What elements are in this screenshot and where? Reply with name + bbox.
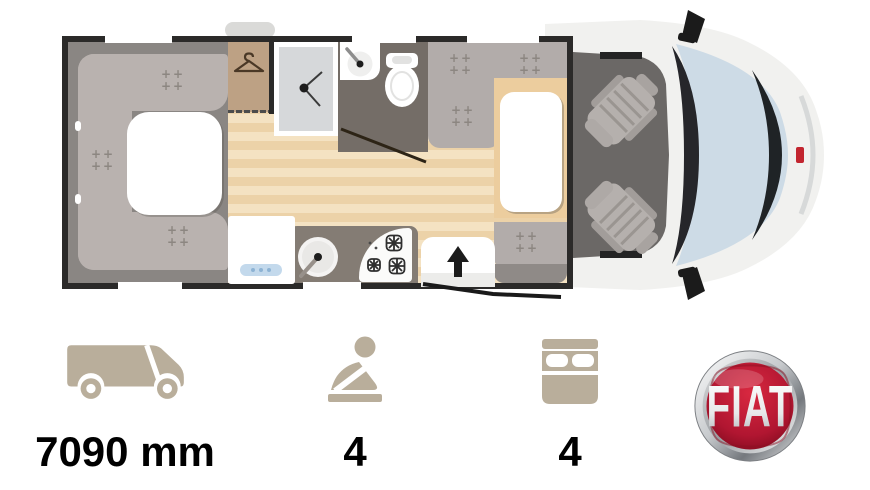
- washroom-door-swing: [338, 126, 430, 168]
- lounge-table: [127, 112, 222, 215]
- travel-seats-value: 4: [299, 428, 411, 476]
- spec-berths: 4: [514, 338, 626, 476]
- window: [303, 282, 361, 289]
- seated-person-icon: [323, 336, 387, 404]
- step-control-dots: [240, 264, 282, 276]
- upholstery-buttons: [450, 104, 474, 128]
- cushion-notch: [75, 121, 81, 131]
- shower-head-icon: [286, 60, 330, 116]
- motorhome-layout-card: 7090 mm 4 4: [0, 0, 870, 490]
- washroom-sink: [341, 44, 379, 82]
- dinette-table-bed: [500, 92, 562, 212]
- berths-value: 4: [514, 428, 626, 476]
- window: [467, 36, 539, 43]
- hanger-icon: [232, 52, 266, 78]
- cab-top-view: [540, 4, 836, 306]
- cushion-notch: [75, 194, 81, 204]
- spec-length: 7090 mm: [25, 338, 225, 476]
- toilet: [383, 52, 421, 108]
- upholstery-buttons: [160, 68, 184, 92]
- upholstery-buttons: [518, 52, 542, 76]
- kitchen-sink: [293, 234, 341, 282]
- spec-travel-seats: 4: [299, 336, 411, 476]
- upholstery-buttons: [90, 148, 114, 172]
- window: [105, 36, 172, 43]
- window: [352, 36, 416, 43]
- lounge-bench-bottom: [78, 212, 228, 270]
- door-step-top: [600, 52, 642, 59]
- fiat-logo: FIAT: [692, 348, 808, 464]
- double-bed-icon: [541, 338, 599, 406]
- upholstery-buttons: [448, 52, 472, 76]
- gas-burners-icon: [359, 228, 412, 282]
- window: [118, 282, 182, 289]
- entrance-arrow-icon: [446, 246, 470, 278]
- wardrobe-door-dash: [228, 110, 274, 113]
- upholstery-buttons: [166, 224, 190, 248]
- upholstery-buttons: [514, 230, 538, 254]
- length-value: 7090 mm: [25, 428, 225, 476]
- front-badge: [796, 147, 804, 163]
- open-door-swing: [411, 280, 581, 306]
- van-side-icon: [64, 338, 186, 402]
